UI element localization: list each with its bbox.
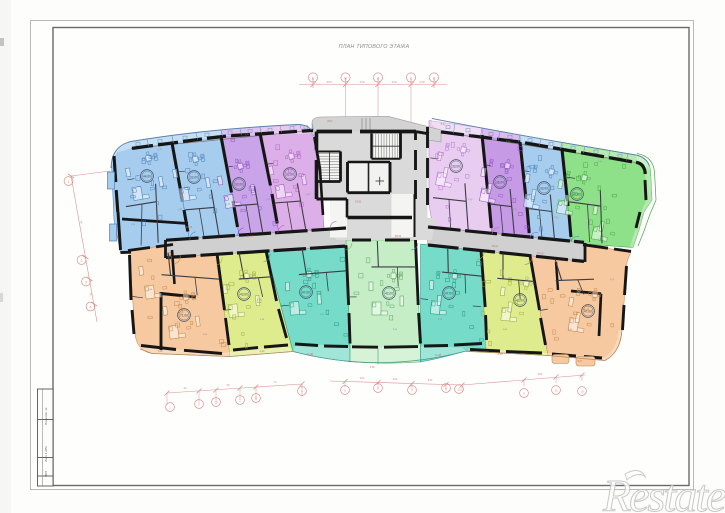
svg-text:43,00: 43,00	[240, 292, 248, 296]
svg-text:32,00: 32,00	[235, 182, 243, 186]
svg-text:1: 1	[68, 180, 70, 184]
svg-text:Ж: Ж	[344, 77, 347, 81]
svg-text:42,00: 42,00	[385, 291, 393, 295]
svg-text:4: 4	[90, 306, 92, 310]
svg-text:План тип. эт.: План тип. эт.	[44, 407, 48, 425]
svg-text:330: 330	[391, 80, 396, 84]
svg-text:Restate: Restate	[602, 470, 725, 513]
svg-text:33,00: 33,00	[540, 186, 548, 190]
svg-text:36,00: 36,00	[496, 180, 504, 184]
svg-text:32,00: 32,00	[286, 172, 294, 176]
svg-text:10: 10	[214, 401, 218, 405]
svg-text:2,20: 2,20	[260, 350, 265, 353]
svg-text:Л: Л	[433, 77, 435, 81]
svg-text:13: 13	[554, 389, 558, 393]
svg-text:47,00: 47,00	[302, 290, 310, 294]
svg-text:330: 330	[359, 80, 364, 84]
svg-text:330: 330	[360, 376, 365, 380]
svg-text:38,37: 38,37	[492, 244, 499, 249]
svg-text:Е: Е	[312, 77, 314, 81]
svg-text:2: 2	[81, 259, 83, 263]
svg-text:16,10: 16,10	[186, 225, 193, 229]
svg-text:44,00: 44,00	[143, 174, 151, 178]
svg-text:330: 330	[393, 377, 398, 381]
svg-text:71,00: 71,00	[180, 313, 188, 317]
svg-text:11,08: 11,08	[307, 353, 313, 356]
svg-text:38,01: 38,01	[395, 234, 402, 238]
svg-text:34: 34	[183, 386, 187, 390]
svg-text:74: 74	[273, 380, 277, 384]
svg-text:8,07: 8,07	[327, 119, 333, 123]
svg-text:25: 25	[226, 383, 230, 387]
svg-text:7,08: 7,08	[158, 350, 163, 353]
svg-text:11,08: 11,08	[435, 354, 441, 357]
svg-text:Лист 4 АР2: Лист 4 АР2	[44, 446, 48, 462]
svg-text:12: 12	[457, 388, 461, 392]
svg-text:390: 390	[326, 80, 331, 84]
svg-text:230: 230	[419, 80, 424, 84]
svg-text:МК 8: МК 8	[44, 471, 48, 477]
svg-text:33,00: 33,00	[452, 164, 460, 168]
svg-text:390: 390	[538, 372, 543, 376]
svg-text:3,30: 3,30	[370, 366, 375, 369]
svg-text:13,02: 13,02	[355, 200, 362, 204]
svg-text:К: К	[410, 77, 412, 81]
svg-text:18,20: 18,20	[537, 251, 544, 256]
svg-text:10: 10	[580, 390, 584, 394]
svg-text:39,81: 39,81	[247, 234, 254, 238]
svg-text:47,00: 47,00	[445, 291, 453, 295]
svg-text:11: 11	[254, 397, 257, 401]
svg-text:3: 3	[85, 281, 87, 285]
svg-text:32,00: 32,00	[190, 175, 198, 179]
svg-text:2,20: 2,20	[498, 353, 503, 356]
svg-text:5,07: 5,07	[578, 360, 583, 363]
svg-text:330: 330	[428, 378, 433, 382]
svg-text:ПЛАН ТИПОВОГО ЭТАЖА: ПЛАН ТИПОВОГО ЭТАЖА	[339, 44, 410, 50]
